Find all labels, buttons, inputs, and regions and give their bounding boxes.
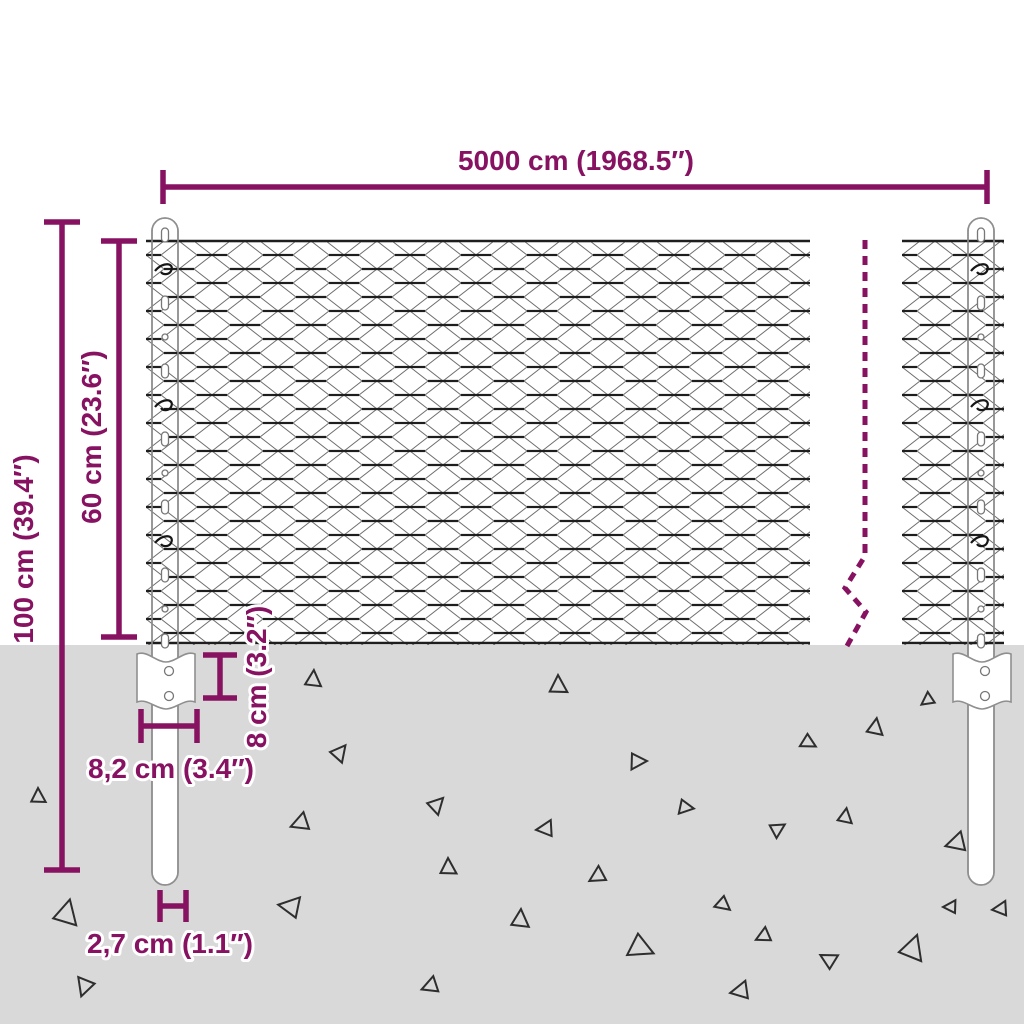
- post-diameter-label: 2,7 cm (1.1″): [87, 928, 253, 959]
- bracket-hole: [165, 692, 174, 701]
- bracket-hole: [981, 692, 990, 701]
- right-post-bracket: [953, 653, 1011, 709]
- bracket-width-label: 8,2 cm (3.4″): [88, 753, 254, 784]
- bracket-height-label: 8 cm (3.2″): [241, 606, 272, 749]
- total-height-label: 100 cm (39.4″): [8, 454, 39, 643]
- left-post-bracket: [137, 653, 195, 709]
- fence-length-label: 5000 cm (1968.5″): [458, 145, 694, 176]
- break-line: [845, 240, 866, 646]
- fence-mesh: [146, 241, 1004, 645]
- mesh-panel-left: [146, 241, 810, 645]
- bracket-hole: [165, 667, 174, 676]
- mesh-height-label: 60 cm (23.6″): [76, 350, 107, 524]
- mesh-panel-right: [902, 241, 1004, 645]
- bracket-hole: [981, 667, 990, 676]
- fence-dimension-diagram: 5000 cm (1968.5″) 100 cm (39.4″) 60 cm (…: [0, 0, 1024, 1024]
